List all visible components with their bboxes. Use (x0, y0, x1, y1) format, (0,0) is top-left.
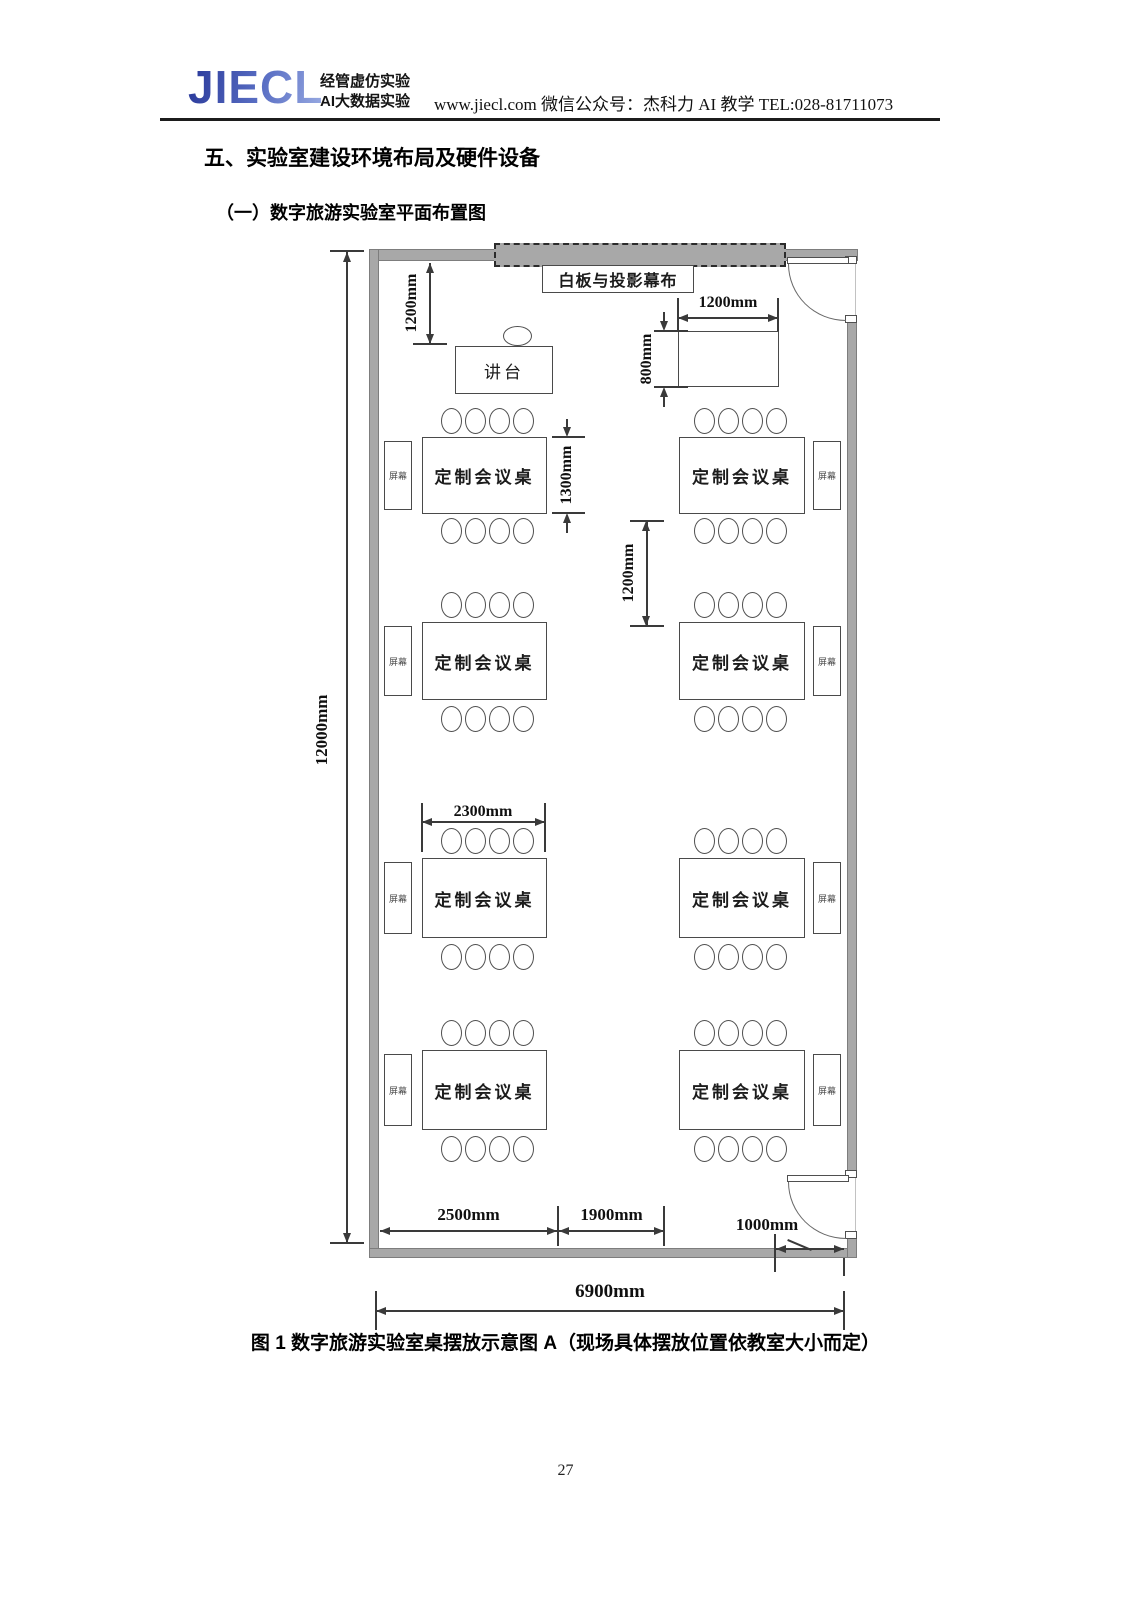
dim-arrow-stem (566, 523, 568, 533)
chair (694, 706, 715, 732)
chair-row (694, 706, 787, 732)
chair (513, 828, 534, 854)
chair (742, 408, 763, 434)
chair (718, 706, 739, 732)
conference-table: 定制会议桌 (422, 1050, 547, 1130)
dim-arrow (547, 1227, 557, 1235)
dim-arrow (768, 314, 778, 322)
dim-arrow (834, 1307, 844, 1315)
dim-label-room-depth: 12000mm (313, 685, 331, 775)
chair (718, 518, 739, 544)
screen-panel: 屏幕 (813, 626, 841, 696)
chair (513, 408, 534, 434)
chair-row (441, 518, 534, 544)
chair (742, 518, 763, 544)
chair-row (694, 518, 787, 544)
conference-table: 定制会议桌 (422, 622, 547, 700)
chair (742, 1136, 763, 1162)
dim-arrow (678, 314, 688, 322)
chair (766, 592, 787, 618)
whiteboard-strip (494, 243, 786, 267)
chair (489, 1136, 510, 1162)
chair (513, 706, 534, 732)
dim-arrow (660, 387, 668, 397)
dim-label-aisle-left: 2500mm (379, 1206, 558, 1223)
chair (513, 1020, 534, 1046)
chair (694, 828, 715, 854)
screen-panel: 屏幕 (384, 626, 412, 696)
dim-arrow (834, 1245, 844, 1253)
chair-row (441, 1136, 534, 1162)
chair-row (441, 1020, 534, 1046)
door-leaf-bottom (787, 1175, 849, 1182)
conference-table: 定制会议桌 (679, 437, 805, 514)
chair (694, 1136, 715, 1162)
side-table (678, 331, 779, 387)
chair (742, 828, 763, 854)
chair (489, 944, 510, 970)
chair (513, 944, 534, 970)
chair (465, 592, 486, 618)
chair-row (694, 828, 787, 854)
chair-row (694, 1020, 787, 1046)
chair (441, 518, 462, 544)
dim-arrow (376, 1307, 386, 1315)
dim-tick (843, 1258, 845, 1276)
dim-label-room-width: 6900mm (375, 1282, 845, 1301)
dim-line-front-offset (429, 263, 431, 344)
chair (441, 828, 462, 854)
chair (718, 828, 739, 854)
screen-panel: 屏幕 (384, 862, 412, 934)
chair (742, 706, 763, 732)
wall-right-lower (847, 1238, 857, 1258)
door-opening-edge-bottom (855, 1178, 856, 1239)
chair (694, 592, 715, 618)
wall-right-main (847, 322, 857, 1178)
chair (766, 408, 787, 434)
screen-panel: 屏幕 (384, 1054, 412, 1126)
dim-line-aisle-left (380, 1230, 557, 1232)
chair (489, 592, 510, 618)
conference-table: 定制会议桌 (422, 858, 547, 938)
conference-table: 定制会议桌 (679, 1050, 805, 1130)
chair (465, 408, 486, 434)
podium: 讲台 (455, 346, 553, 394)
figure-caption: 图 1 数字旅游实验室桌摆放示意图 A（现场具体摆放位置依教室大小而定） (0, 1328, 1131, 1355)
dim-tick (774, 1234, 776, 1272)
chair (742, 944, 763, 970)
dim-line-table-width (422, 821, 545, 823)
chair (489, 706, 510, 732)
dim-line-room-depth (346, 252, 348, 1243)
chair (465, 1136, 486, 1162)
chair (694, 408, 715, 434)
wall-left (369, 249, 379, 1258)
dim-label-side-table-width: 1200mm (678, 295, 778, 311)
chair (718, 592, 739, 618)
dim-label-table-width: 2300mm (421, 804, 545, 820)
document-page: JIECL 经管虚仿实验 AI大数据实验 www.jiecl.com 微信公众号… (0, 0, 1131, 1600)
chair (766, 1020, 787, 1046)
dim-arrow (776, 1245, 786, 1253)
chair (694, 1020, 715, 1046)
screen-panel: 屏幕 (813, 1054, 841, 1126)
chair (465, 706, 486, 732)
chair-row (694, 592, 787, 618)
chair (766, 706, 787, 732)
chair (718, 944, 739, 970)
conference-table: 定制会议桌 (422, 437, 547, 514)
chair-row (441, 408, 534, 434)
chair-row (694, 1136, 787, 1162)
dim-label-aisle-mid: 1900mm (558, 1206, 665, 1223)
dim-line-row-gap (646, 521, 648, 626)
screen-panel: 屏幕 (813, 862, 841, 934)
dim-arrow (559, 1227, 569, 1235)
chair (489, 828, 510, 854)
dim-line-aisle-mid (559, 1230, 664, 1232)
chair (694, 944, 715, 970)
chair (465, 944, 486, 970)
chair-row (441, 828, 534, 854)
dim-arrow (642, 616, 650, 626)
door-leaf-top (787, 257, 849, 264)
chair (489, 518, 510, 544)
dim-line-room-width (376, 1310, 844, 1312)
dim-arrow (343, 252, 351, 262)
conference-table: 定制会议桌 (679, 858, 805, 938)
chair (465, 518, 486, 544)
dim-line-side-table-width (678, 317, 778, 319)
chair-row (441, 706, 534, 732)
chair (441, 408, 462, 434)
chair (465, 1020, 486, 1046)
chair (513, 592, 534, 618)
dim-arrow (660, 321, 668, 331)
dim-arrow (426, 263, 434, 273)
dim-arrow (380, 1227, 390, 1235)
chair (441, 1020, 462, 1046)
chair (489, 1020, 510, 1046)
floorplan: 白板与投影幕布 12000mm 1200mm 讲台 1200mm 800mm (0, 0, 1131, 1600)
chair (513, 1136, 534, 1162)
page-number: 27 (0, 1462, 1131, 1480)
screen-panel: 屏幕 (813, 441, 841, 510)
chair (718, 408, 739, 434)
door-jamb (845, 315, 857, 323)
chair-row (441, 592, 534, 618)
dim-tick (557, 1206, 559, 1246)
chair (766, 518, 787, 544)
chair-row (441, 944, 534, 970)
chair (694, 518, 715, 544)
chair (742, 592, 763, 618)
dim-arrow (642, 521, 650, 531)
chair (441, 1136, 462, 1162)
dim-label-front-offset: 1200mm (404, 259, 420, 347)
dim-label-side-table-depth: 800mm (639, 315, 655, 403)
door-jamb (845, 1231, 857, 1239)
chair (766, 1136, 787, 1162)
chair-row (694, 944, 787, 970)
chair (513, 518, 534, 544)
chair (489, 408, 510, 434)
dim-label-row-gap: 1200mm (621, 529, 637, 617)
chair (766, 944, 787, 970)
dim-label-table-depth: 1300mm (559, 431, 575, 519)
chair (718, 1136, 739, 1162)
chair-row (694, 408, 787, 434)
conference-table: 定制会议桌 (679, 622, 805, 700)
chair (766, 828, 787, 854)
chair (718, 1020, 739, 1046)
door-swing-arc-top (788, 264, 846, 321)
dim-arrow (343, 1233, 351, 1243)
whiteboard-label-box: 白板与投影幕布 (542, 265, 694, 293)
chair (742, 1020, 763, 1046)
chair (441, 592, 462, 618)
door-opening-edge-top (855, 261, 856, 323)
dim-arrow-stem (663, 397, 665, 407)
podium-chair (503, 326, 532, 346)
dim-tick (663, 1206, 665, 1246)
dim-label-door-offset: 1000mm (731, 1216, 803, 1233)
chair (441, 706, 462, 732)
chair (441, 944, 462, 970)
screen-panel: 屏幕 (384, 441, 412, 510)
chair (465, 828, 486, 854)
